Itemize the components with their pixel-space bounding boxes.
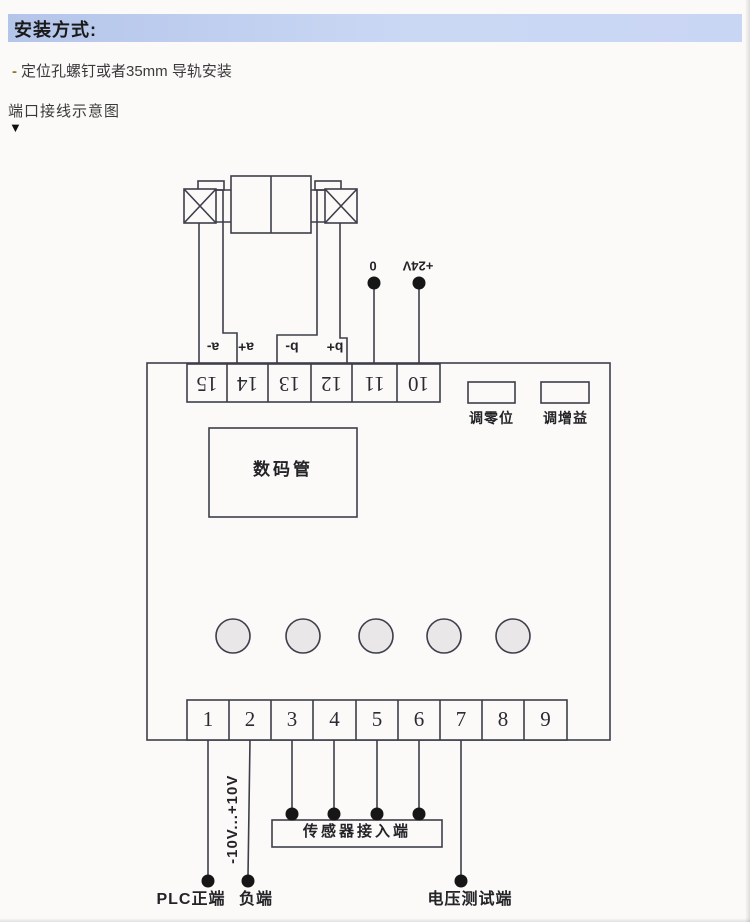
manual-page: 安装方式: -定位孔螺钉或者35mm 导轨安装 端口接线示意图 ▼ bbox=[0, 0, 750, 922]
scan-edge-bottom bbox=[0, 918, 750, 922]
dot-sensor-3 bbox=[286, 808, 299, 821]
terminal-4: 4 bbox=[313, 700, 356, 740]
scan-edge-right bbox=[745, 0, 750, 922]
button-4 bbox=[427, 619, 461, 653]
button-row bbox=[216, 619, 530, 653]
zero-pot-label: 调零位 bbox=[463, 411, 520, 426]
dot-voltage-test bbox=[455, 875, 468, 888]
negative-label: 负端 bbox=[216, 891, 296, 909]
terminal-14: 14 bbox=[227, 365, 268, 402]
terminal-10: 10 bbox=[397, 365, 440, 402]
transformer-symbol-left bbox=[184, 189, 216, 223]
label-24v: +24V bbox=[396, 258, 440, 272]
gain-pot-label: 调增益 bbox=[537, 411, 594, 426]
terminal-15: 15 bbox=[187, 365, 227, 402]
label-b-minus: b- bbox=[278, 339, 306, 354]
dot-0v bbox=[368, 277, 381, 290]
terminal-12: 12 bbox=[311, 365, 352, 402]
terminal-11: 11 bbox=[352, 365, 397, 402]
transformer-symbol-right bbox=[325, 189, 357, 223]
wiring-diagram bbox=[0, 0, 750, 922]
terminal-5: 5 bbox=[356, 700, 398, 740]
button-5 bbox=[496, 619, 530, 653]
gain-pot-box bbox=[541, 382, 589, 403]
wire-negative bbox=[248, 740, 250, 876]
terminal-1: 1 bbox=[187, 700, 229, 740]
dot-sensor-6 bbox=[413, 808, 426, 821]
terminal-8: 8 bbox=[482, 700, 524, 740]
dot-sensor-4 bbox=[328, 808, 341, 821]
button-3 bbox=[359, 619, 393, 653]
terminal-7: 7 bbox=[440, 700, 482, 740]
dot-negative bbox=[242, 875, 255, 888]
voltage-range-label: -10V...+10V bbox=[225, 764, 242, 874]
button-1 bbox=[216, 619, 250, 653]
label-b-plus: b+ bbox=[321, 339, 349, 354]
terminal-2: 2 bbox=[229, 700, 271, 740]
dot-sensor-5 bbox=[371, 808, 384, 821]
voltage-test-label: 电压测试端 bbox=[410, 891, 530, 909]
dot-plc-positive bbox=[202, 875, 215, 888]
terminal-9: 9 bbox=[524, 700, 567, 740]
terminal-13: 13 bbox=[268, 365, 311, 402]
zero-pot-box bbox=[468, 382, 515, 403]
button-2 bbox=[286, 619, 320, 653]
terminal-3: 3 bbox=[271, 700, 313, 740]
sensor-body bbox=[231, 176, 311, 233]
dot-24v bbox=[413, 277, 426, 290]
terminal-6: 6 bbox=[398, 700, 440, 740]
digital-display-label: 数码管 bbox=[223, 461, 343, 480]
label-a-plus: a+ bbox=[232, 339, 260, 354]
label-0v: 0 bbox=[365, 258, 381, 272]
label-a-minus: a- bbox=[199, 339, 227, 354]
sensor-input-label: 传感器接入端 bbox=[277, 824, 437, 841]
